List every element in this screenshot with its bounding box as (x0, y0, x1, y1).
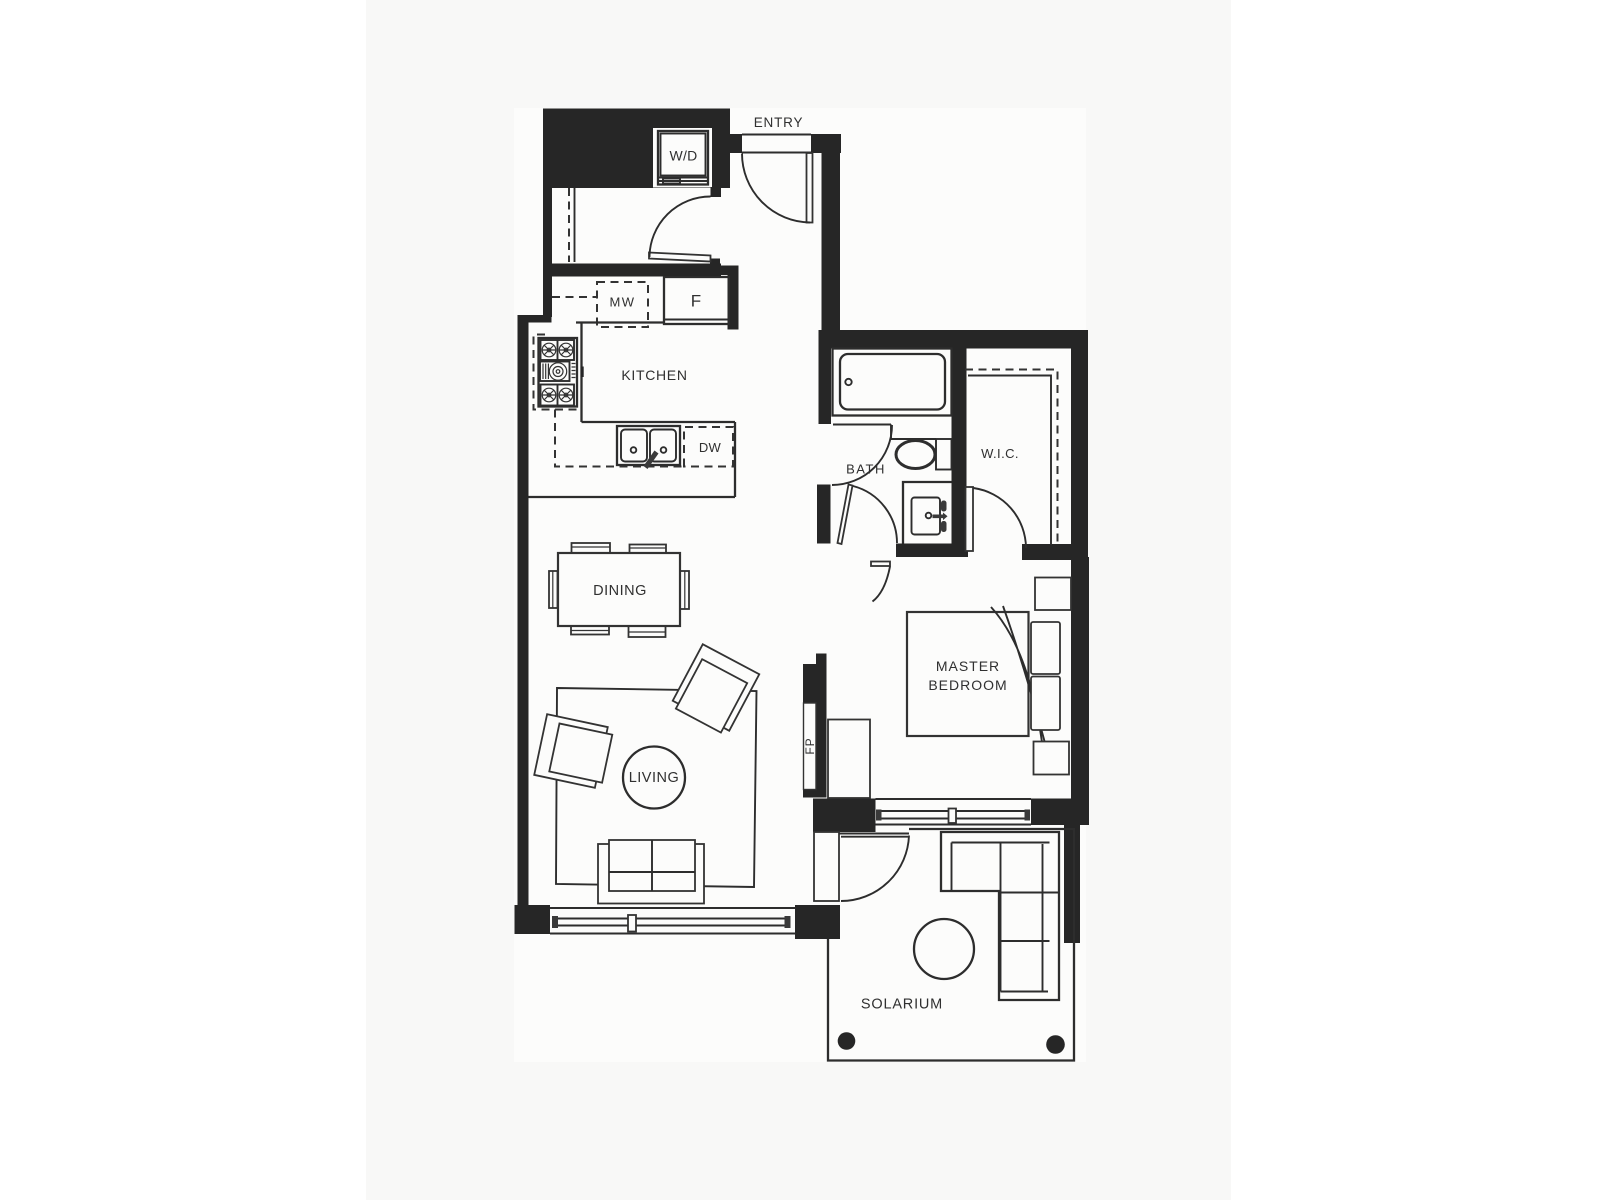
svg-text:MASTER: MASTER (936, 658, 1000, 674)
svg-text:BEDROOM: BEDROOM (928, 677, 1007, 693)
svg-text:KITCHEN: KITCHEN (621, 367, 687, 383)
svg-text:DW: DW (699, 440, 722, 455)
svg-text:SOLARIUM: SOLARIUM (861, 997, 943, 1013)
svg-text:DINING: DINING (593, 583, 647, 599)
svg-text:MW: MW (609, 295, 635, 310)
svg-text:F: F (691, 292, 701, 311)
svg-text:ENTRY: ENTRY (754, 115, 804, 130)
svg-text:LIVING: LIVING (629, 770, 680, 786)
svg-text:W.I.C.: W.I.C. (981, 446, 1019, 461)
svg-text:W/D: W/D (669, 148, 697, 164)
svg-text:FP: FP (803, 737, 817, 754)
